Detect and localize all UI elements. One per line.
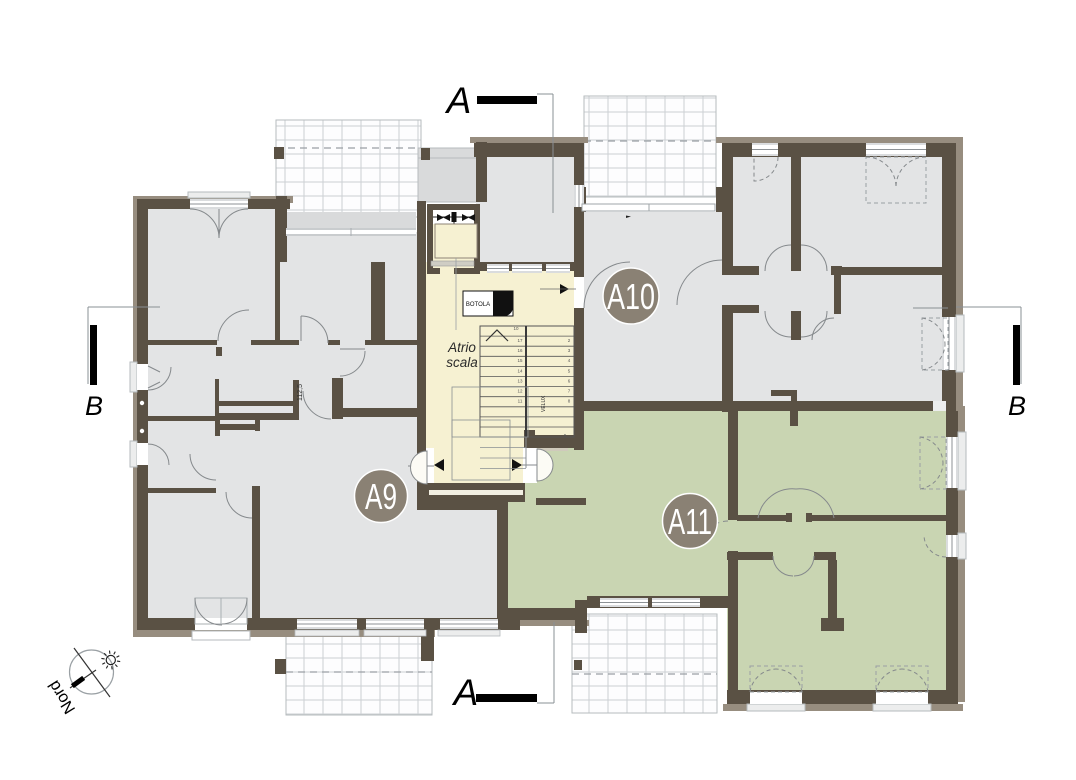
svg-text:14: 14 xyxy=(517,368,523,373)
svg-text:16: 16 xyxy=(517,348,523,353)
svg-text:15: 15 xyxy=(517,358,523,363)
svg-text:17: 17 xyxy=(517,338,523,343)
svg-text:A11: A11 xyxy=(668,501,712,542)
svg-text:scala: scala xyxy=(446,355,478,370)
svg-text:VELUX: VELUX xyxy=(541,395,547,412)
svg-text:BOTOLA: BOTOLA xyxy=(466,302,490,308)
svg-text:11: 11 xyxy=(518,399,523,404)
svg-text:Atrio: Atrio xyxy=(447,340,476,355)
svg-text:13: 13 xyxy=(517,378,523,383)
svg-text:B: B xyxy=(85,391,103,421)
svg-text:10: 10 xyxy=(513,326,519,331)
svg-text:B: B xyxy=(1008,391,1026,421)
svg-text:A: A xyxy=(452,672,479,713)
svg-text:A10: A10 xyxy=(607,276,655,317)
svg-text:A9: A9 xyxy=(365,476,397,517)
svg-text:A: A xyxy=(445,80,472,121)
svg-text:12: 12 xyxy=(517,389,523,394)
